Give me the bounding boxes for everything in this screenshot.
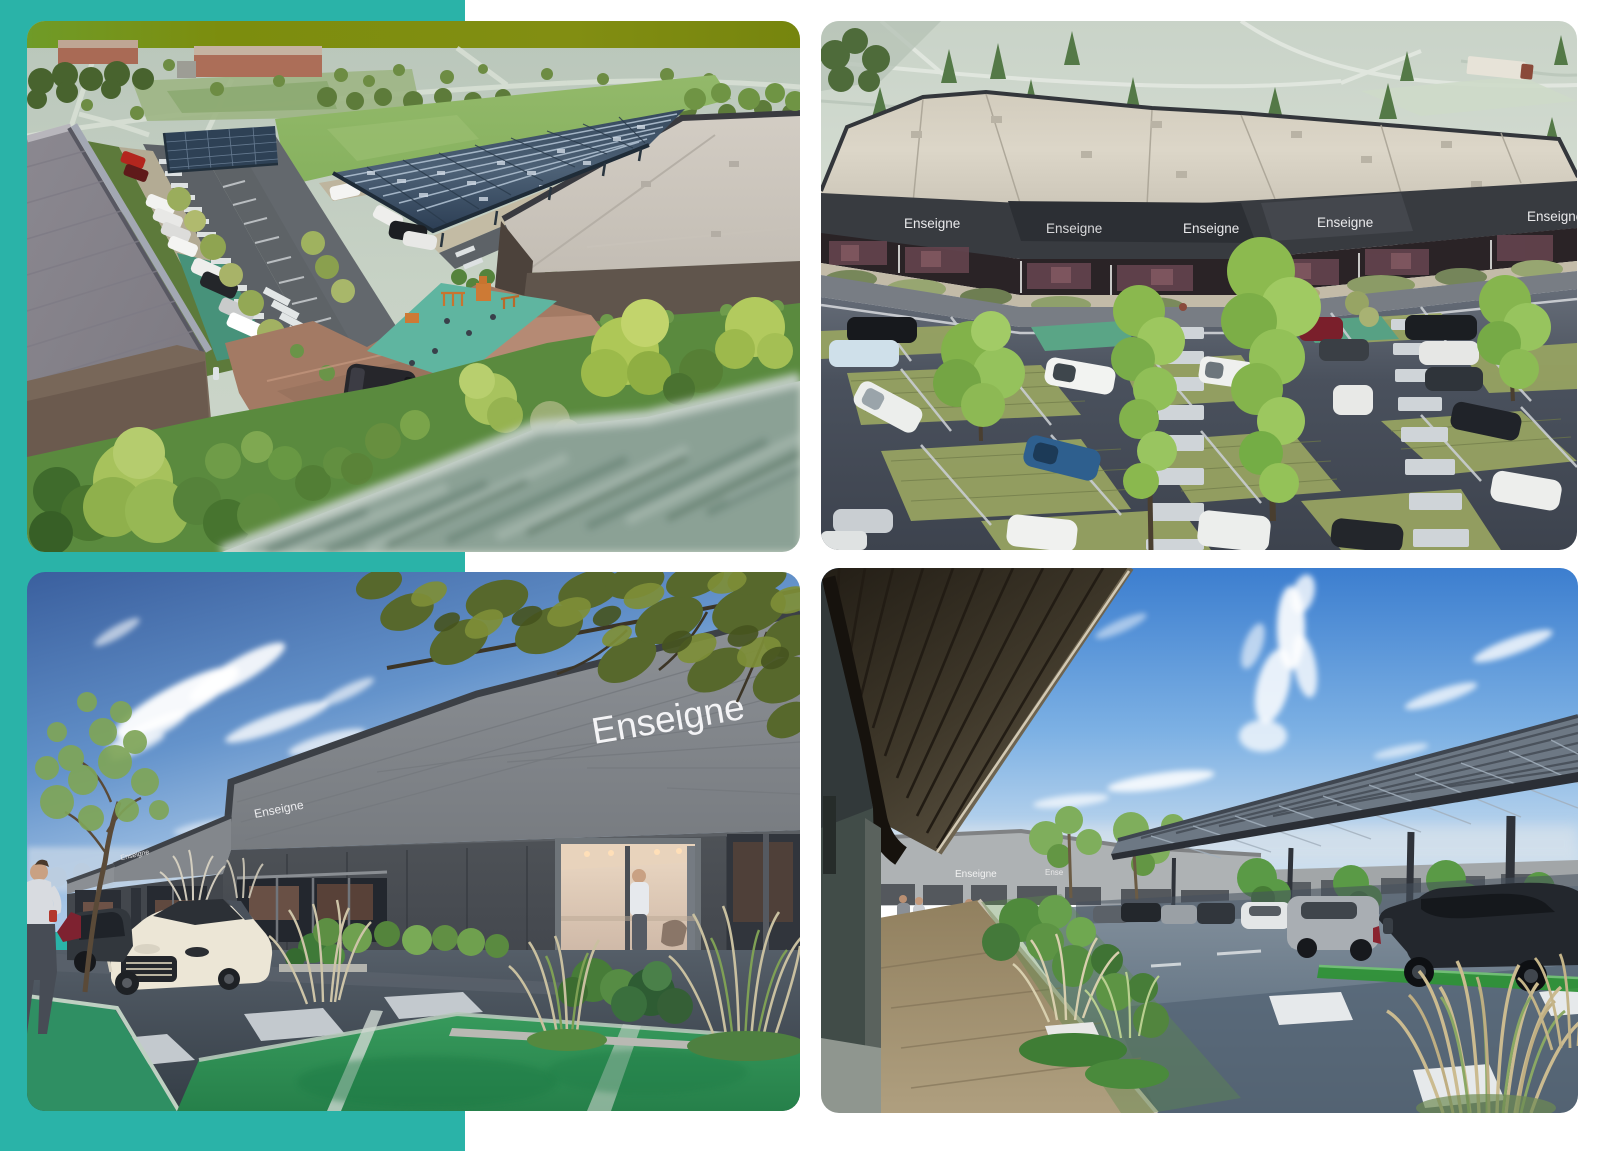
svg-text:Enseigne: Enseigne xyxy=(1183,221,1239,236)
svg-text:Enseigne: Enseigne xyxy=(1046,221,1102,236)
svg-text:Ense: Ense xyxy=(1045,868,1064,877)
svg-text:Enseigne: Enseigne xyxy=(1527,209,1577,224)
svg-text:Enseigne: Enseigne xyxy=(955,869,997,880)
svg-text:Enseigne: Enseigne xyxy=(1317,215,1373,230)
svg-text:Enseigne: Enseigne xyxy=(904,216,960,231)
